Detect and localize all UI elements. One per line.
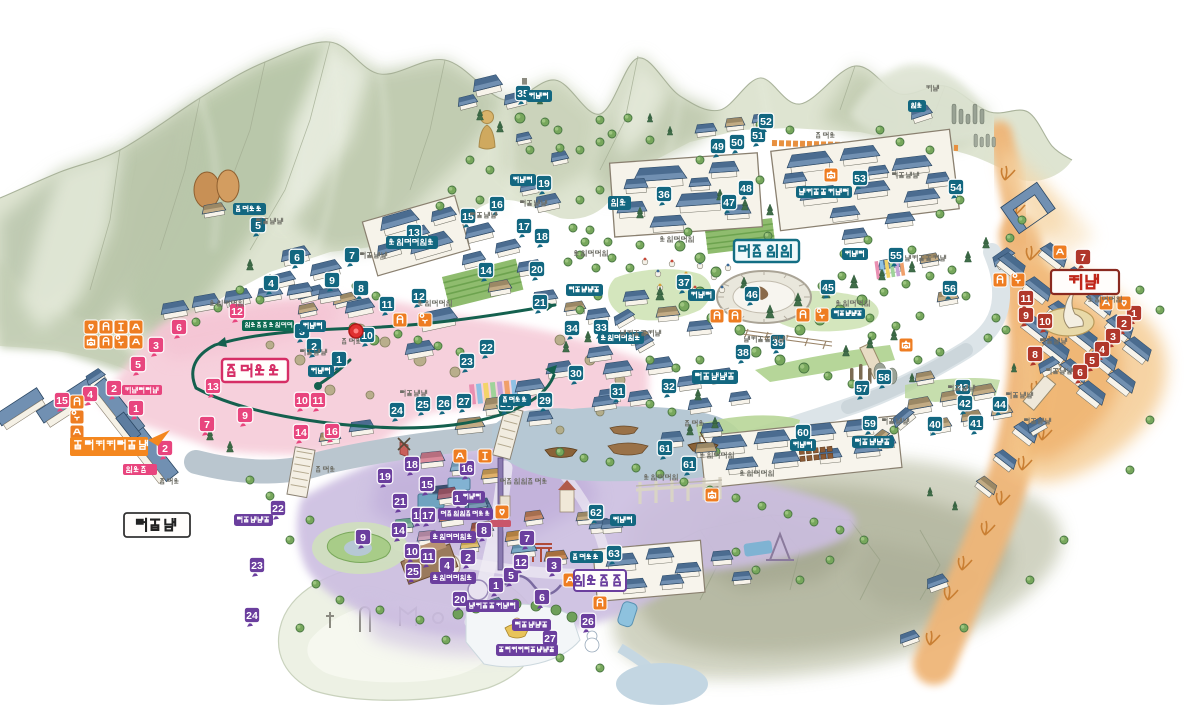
svg-text:10: 10 (406, 546, 418, 558)
svg-text:11: 11 (312, 395, 323, 407)
svg-text:60: 60 (797, 427, 809, 439)
svg-text:2: 2 (1121, 318, 1127, 330)
svg-text:55: 55 (890, 250, 902, 262)
svg-text:58: 58 (878, 372, 890, 384)
svg-text:11: 11 (1020, 293, 1031, 305)
svg-text:11: 11 (422, 551, 433, 563)
svg-text:5: 5 (255, 220, 261, 232)
svg-text:5: 5 (135, 359, 141, 371)
svg-text:8: 8 (358, 283, 364, 295)
svg-text:20: 20 (531, 264, 543, 276)
svg-text:1: 1 (336, 354, 342, 366)
svg-text:17: 17 (422, 510, 434, 522)
svg-text:46: 46 (746, 289, 758, 301)
svg-text:57: 57 (856, 383, 868, 395)
svg-text:18: 18 (536, 231, 548, 243)
svg-text:21: 21 (534, 297, 546, 309)
svg-text:14: 14 (295, 427, 307, 439)
svg-text:25: 25 (407, 566, 419, 578)
svg-text:24: 24 (246, 610, 258, 622)
svg-text:2: 2 (111, 383, 117, 395)
svg-text:4: 4 (444, 560, 450, 572)
svg-text:7: 7 (1080, 252, 1086, 264)
svg-text:1: 1 (493, 580, 499, 592)
svg-text:41: 41 (970, 418, 982, 430)
svg-text:54: 54 (950, 182, 962, 194)
svg-text:10: 10 (1039, 316, 1051, 328)
svg-text:8: 8 (481, 525, 487, 537)
svg-text:14: 14 (393, 525, 405, 537)
svg-text:48: 48 (740, 183, 752, 195)
svg-text:27: 27 (458, 396, 470, 408)
svg-text:4: 4 (268, 278, 274, 290)
svg-text:42: 42 (959, 398, 971, 410)
svg-text:21: 21 (394, 496, 406, 508)
svg-text:7: 7 (524, 533, 530, 545)
svg-text:2: 2 (311, 341, 317, 353)
svg-text:3: 3 (551, 560, 557, 572)
svg-text:52: 52 (760, 116, 772, 128)
svg-text:6: 6 (176, 322, 182, 334)
svg-text:40: 40 (929, 419, 941, 431)
svg-text:9: 9 (360, 532, 366, 544)
svg-text:25: 25 (417, 399, 429, 411)
svg-text:2: 2 (162, 443, 168, 455)
svg-text:23: 23 (251, 560, 263, 572)
svg-text:6: 6 (294, 252, 300, 264)
svg-text:12: 12 (515, 557, 527, 569)
svg-text:3: 3 (153, 340, 159, 352)
svg-text:34: 34 (566, 323, 578, 335)
svg-text:49: 49 (712, 141, 724, 153)
svg-text:38: 38 (737, 347, 749, 359)
svg-text:47: 47 (723, 197, 735, 209)
svg-text:13: 13 (207, 381, 219, 393)
svg-text:26: 26 (582, 616, 594, 628)
svg-text:17: 17 (518, 221, 530, 233)
svg-text:18: 18 (406, 459, 418, 471)
svg-text:61: 61 (659, 443, 671, 455)
svg-text:59: 59 (864, 418, 876, 430)
svg-text:32: 32 (663, 381, 675, 393)
svg-text:62: 62 (590, 507, 602, 519)
svg-text:4: 4 (87, 389, 93, 401)
svg-text:26: 26 (438, 398, 450, 410)
svg-text:44: 44 (994, 399, 1006, 411)
svg-text:11: 11 (381, 299, 392, 311)
svg-text:6: 6 (1077, 367, 1083, 379)
svg-text:63: 63 (608, 548, 620, 560)
svg-text:19: 19 (538, 178, 550, 190)
svg-text:30: 30 (570, 368, 582, 380)
svg-text:16: 16 (461, 463, 473, 475)
svg-text:15: 15 (421, 479, 433, 491)
svg-text:24: 24 (391, 405, 403, 417)
svg-text:2: 2 (465, 552, 471, 564)
svg-text:23: 23 (461, 356, 473, 368)
svg-text:31: 31 (612, 386, 624, 398)
svg-text:53: 53 (854, 173, 866, 185)
svg-text:12: 12 (231, 306, 243, 318)
svg-text:3: 3 (1110, 331, 1116, 343)
svg-text:8: 8 (1032, 349, 1038, 361)
svg-text:5: 5 (508, 570, 514, 582)
svg-text:36: 36 (658, 189, 670, 201)
svg-text:14: 14 (480, 265, 492, 277)
svg-text:45: 45 (822, 282, 834, 294)
svg-text:7: 7 (204, 419, 210, 431)
svg-text:22: 22 (272, 503, 284, 515)
svg-text:27: 27 (544, 633, 556, 645)
svg-text:20: 20 (454, 594, 466, 606)
svg-text:1: 1 (133, 403, 139, 415)
svg-text:15: 15 (56, 395, 68, 407)
svg-text:16: 16 (326, 426, 338, 438)
svg-text:6: 6 (539, 592, 545, 604)
svg-text:16: 16 (491, 199, 503, 211)
svg-text:9: 9 (242, 410, 248, 422)
svg-text:37: 37 (678, 277, 690, 289)
svg-text:10: 10 (296, 395, 308, 407)
svg-text:22: 22 (481, 342, 493, 354)
svg-text:61: 61 (683, 459, 695, 471)
svg-text:50: 50 (731, 137, 743, 149)
svg-text:9: 9 (329, 275, 335, 287)
svg-text:9: 9 (1023, 310, 1029, 322)
svg-text:5: 5 (1089, 355, 1095, 367)
svg-text:56: 56 (944, 283, 956, 295)
svg-text:19: 19 (379, 471, 391, 483)
svg-text:29: 29 (539, 395, 551, 407)
svg-text:7: 7 (349, 250, 355, 262)
